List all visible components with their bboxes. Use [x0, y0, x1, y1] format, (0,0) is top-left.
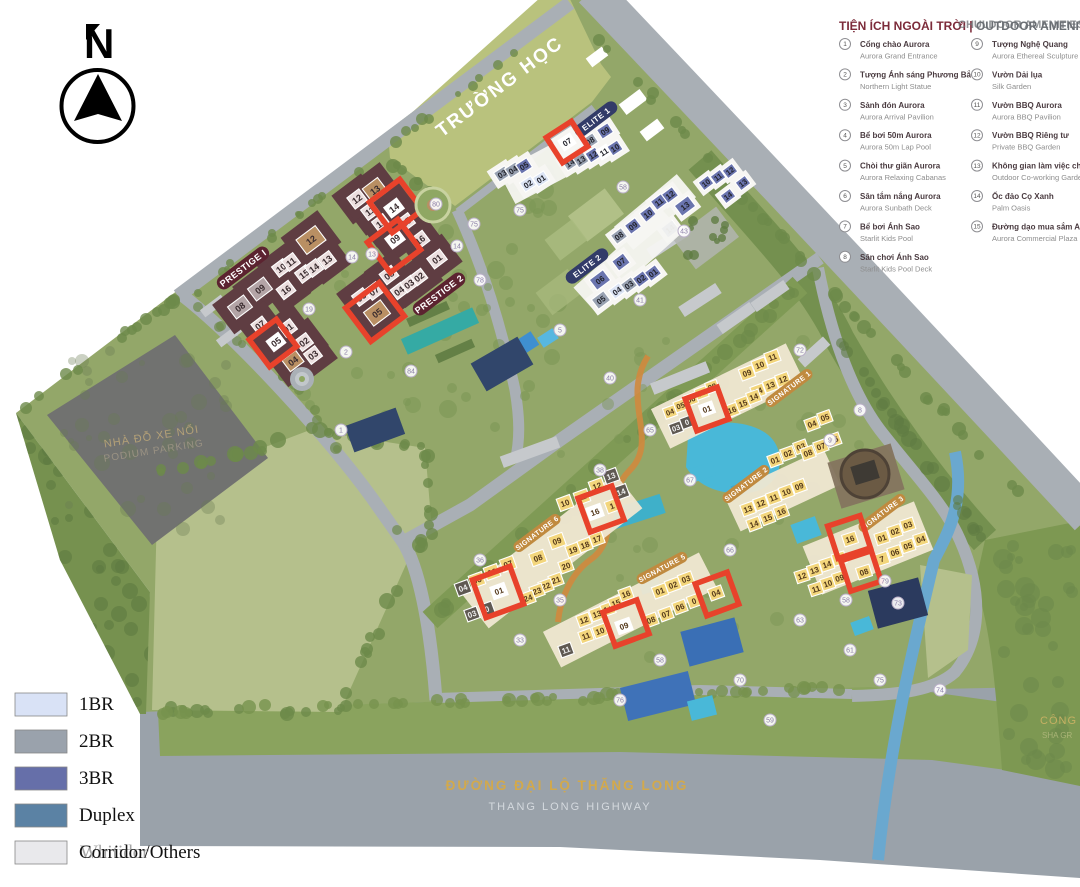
- svg-text:14: 14: [348, 255, 356, 262]
- svg-text:6: 6: [843, 193, 847, 200]
- svg-text:Cổng chào Aurora: Cổng chào Aurora: [860, 40, 930, 49]
- svg-text:10: 10: [973, 72, 981, 79]
- svg-text:36: 36: [476, 558, 484, 565]
- svg-text:76: 76: [616, 698, 624, 705]
- svg-text:3BR: 3BR: [79, 768, 114, 789]
- svg-text:Bể bơi 50m Aurora: Bể bơi 50m Aurora: [860, 131, 932, 140]
- svg-text:Aurora BBQ Pavilion: Aurora BBQ Pavilion: [992, 112, 1061, 121]
- svg-text:Ốc đảo Cọ Xanh: Ốc đảo Cọ Xanh: [992, 191, 1054, 201]
- svg-text:Private BBQ Garden: Private BBQ Garden: [992, 143, 1060, 152]
- svg-text:CHULDOOR AMENITIES: CHULDOOR AMENITIES: [958, 19, 1080, 31]
- svg-text:Aurora Commercial Plaza: Aurora Commercial Plaza: [992, 234, 1078, 243]
- svg-text:5: 5: [843, 163, 847, 170]
- svg-text:74: 74: [936, 688, 944, 695]
- svg-text:1BR: 1BR: [79, 694, 114, 715]
- svg-text:Duplex: Duplex: [79, 805, 135, 826]
- svg-text:8: 8: [843, 254, 847, 261]
- svg-text:11: 11: [974, 102, 981, 109]
- svg-text:Whitidor: Whitidor: [80, 842, 149, 863]
- svg-text:2: 2: [843, 72, 847, 79]
- svg-text:78: 78: [476, 278, 484, 285]
- svg-text:19: 19: [305, 307, 313, 314]
- svg-text:40: 40: [606, 376, 614, 383]
- svg-text:Northern Light Statue: Northern Light Statue: [860, 82, 931, 91]
- svg-text:Chòi thư giãn Aurora: Chòi thư giãn Aurora: [860, 162, 941, 171]
- svg-text:1: 1: [843, 41, 847, 48]
- svg-text:58: 58: [842, 598, 850, 605]
- svg-text:58: 58: [619, 185, 627, 192]
- svg-text:Không gian làm việc chung ng: Không gian làm việc chung ng: [992, 162, 1080, 171]
- svg-text:33: 33: [516, 638, 524, 645]
- svg-text:73: 73: [894, 601, 902, 608]
- svg-text:70: 70: [736, 678, 744, 685]
- svg-text:1: 1: [339, 428, 343, 435]
- svg-text:THANG LONG HIGHWAY: THANG LONG HIGHWAY: [488, 801, 651, 813]
- svg-text:35: 35: [556, 598, 564, 605]
- svg-text:61: 61: [846, 648, 854, 655]
- svg-text:Palm Oasis: Palm Oasis: [992, 204, 1031, 213]
- svg-text:14: 14: [973, 193, 981, 200]
- svg-text:Aurora Relaxing Cabanas: Aurora Relaxing Cabanas: [860, 173, 946, 182]
- svg-text:65: 65: [646, 428, 654, 435]
- svg-text:75: 75: [516, 208, 524, 215]
- svg-text:58: 58: [656, 658, 664, 665]
- svg-text:Aurora Grand Entrance: Aurora Grand Entrance: [860, 52, 938, 61]
- svg-text:Sân tắm nắng Aurora: Sân tắm nắng Aurora: [860, 192, 941, 201]
- svg-text:Vườn BBQ Riêng tư: Vườn BBQ Riêng tư: [992, 131, 1069, 140]
- svg-text:75: 75: [470, 222, 478, 229]
- svg-text:Vườn BBQ Aurora: Vườn BBQ Aurora: [992, 101, 1062, 110]
- svg-text:Aurora 50m Lap Pool: Aurora 50m Lap Pool: [860, 143, 931, 152]
- svg-text:SHA GR: SHA GR: [1042, 731, 1072, 740]
- svg-text:43: 43: [680, 229, 688, 236]
- svg-text:Aurora Arrival Pavilion: Aurora Arrival Pavilion: [860, 112, 934, 121]
- svg-text:13: 13: [368, 252, 376, 259]
- svg-text:59: 59: [766, 718, 774, 725]
- svg-text:41: 41: [636, 298, 644, 305]
- svg-text:Đường dạo mua sắm Aurora: Đường dạo mua sắm Aurora: [992, 222, 1080, 231]
- svg-text:Aurora Ethereal Sculpture: Aurora Ethereal Sculpture: [992, 52, 1078, 61]
- svg-text:79: 79: [881, 579, 889, 586]
- svg-text:38: 38: [596, 468, 604, 475]
- svg-text:Sân chơi Ánh Sao: Sân chơi Ánh Sao: [860, 253, 929, 262]
- svg-text:2: 2: [344, 350, 348, 357]
- svg-text:3: 3: [843, 102, 847, 109]
- svg-text:Tượng Nghệ Quang: Tượng Nghệ Quang: [992, 40, 1068, 49]
- svg-text:Bể bơi Ánh Sao: Bể bơi Ánh Sao: [860, 222, 920, 231]
- svg-text:84: 84: [407, 369, 415, 376]
- svg-text:7: 7: [843, 224, 847, 231]
- svg-text:66: 66: [726, 548, 734, 555]
- svg-text:13: 13: [973, 163, 981, 170]
- svg-text:4: 4: [843, 132, 847, 139]
- svg-text:Starlit Kids Pool: Starlit Kids Pool: [860, 234, 913, 243]
- svg-text:9: 9: [975, 41, 979, 48]
- svg-text:15: 15: [973, 224, 981, 231]
- svg-text:Silk Garden: Silk Garden: [992, 82, 1031, 91]
- svg-text:2BR: 2BR: [79, 731, 114, 752]
- svg-text:14: 14: [453, 244, 461, 251]
- svg-text:ĐƯỜNG ĐẠI LỘ THĂNG LONG: ĐƯỜNG ĐẠI LỘ THĂNG LONG: [446, 778, 689, 793]
- svg-text:Vườn Dải lụa: Vườn Dải lụa: [992, 70, 1043, 79]
- svg-text:67: 67: [686, 478, 694, 485]
- svg-text:80: 80: [432, 202, 440, 209]
- svg-text:CÔNG V: CÔNG V: [1040, 714, 1080, 727]
- svg-text:8: 8: [858, 408, 862, 415]
- svg-text:72: 72: [796, 348, 804, 355]
- svg-text:Outdoor Co-working Garden: Outdoor Co-working Garden: [992, 173, 1080, 182]
- svg-text:Tượng Ánh sáng Phương Bắc: Tượng Ánh sáng Phương Bắc: [860, 70, 976, 79]
- svg-text:5: 5: [558, 328, 562, 335]
- svg-text:12: 12: [973, 132, 981, 139]
- svg-text:Aurora Sunbath Deck: Aurora Sunbath Deck: [860, 204, 932, 213]
- svg-text:63: 63: [796, 618, 804, 625]
- svg-text:75: 75: [876, 678, 884, 685]
- svg-text:Sảnh đón Aurora: Sảnh đón Aurora: [860, 101, 925, 110]
- svg-text:Starlit Kids Pool Deck: Starlit Kids Pool Deck: [860, 264, 932, 273]
- svg-text:9: 9: [828, 438, 832, 445]
